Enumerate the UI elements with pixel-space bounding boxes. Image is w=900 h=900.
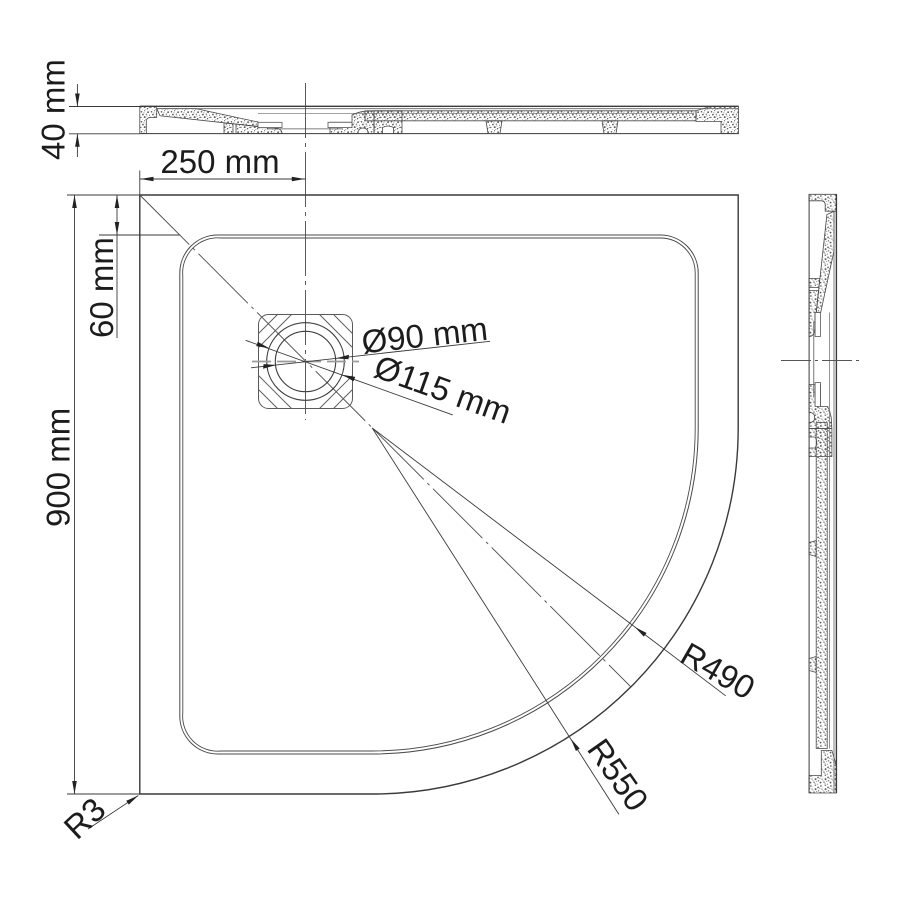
svg-text:40 mm: 40 mm (35, 59, 72, 160)
svg-text:R3: R3 (57, 790, 113, 846)
svg-text:60 mm: 60 mm (83, 237, 120, 338)
svg-text:R550: R550 (580, 732, 656, 818)
svg-text:R490: R490 (675, 635, 762, 706)
svg-text:900 mm: 900 mm (40, 408, 77, 527)
svg-text:250 mm: 250 mm (160, 143, 279, 180)
svg-text:Ø115 mm: Ø115 mm (370, 348, 517, 431)
svg-text:Ø90 mm: Ø90 mm (360, 310, 490, 361)
